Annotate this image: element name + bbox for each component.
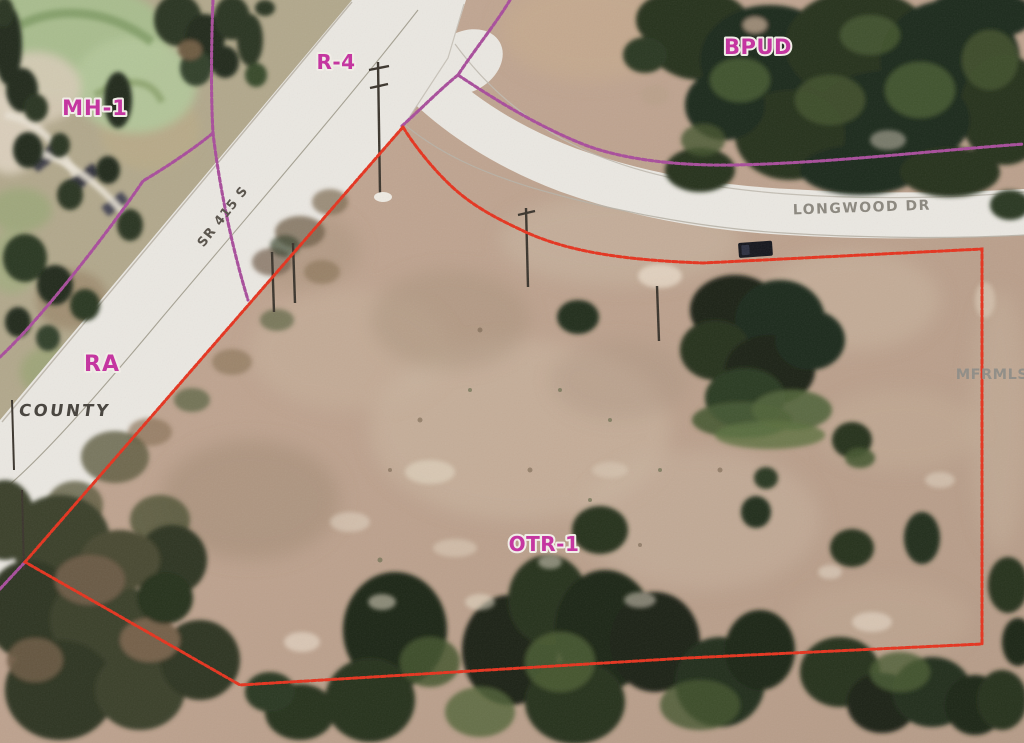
aerial-zoning-map: MH-1 R-4 BPUD RA OTR-1 SR 415 S LONGWOOD… xyxy=(0,0,1024,743)
map-canvas: MH-1 R-4 BPUD RA OTR-1 SR 415 S LONGWOOD… xyxy=(0,0,1024,743)
grain-overlay xyxy=(0,0,1024,743)
